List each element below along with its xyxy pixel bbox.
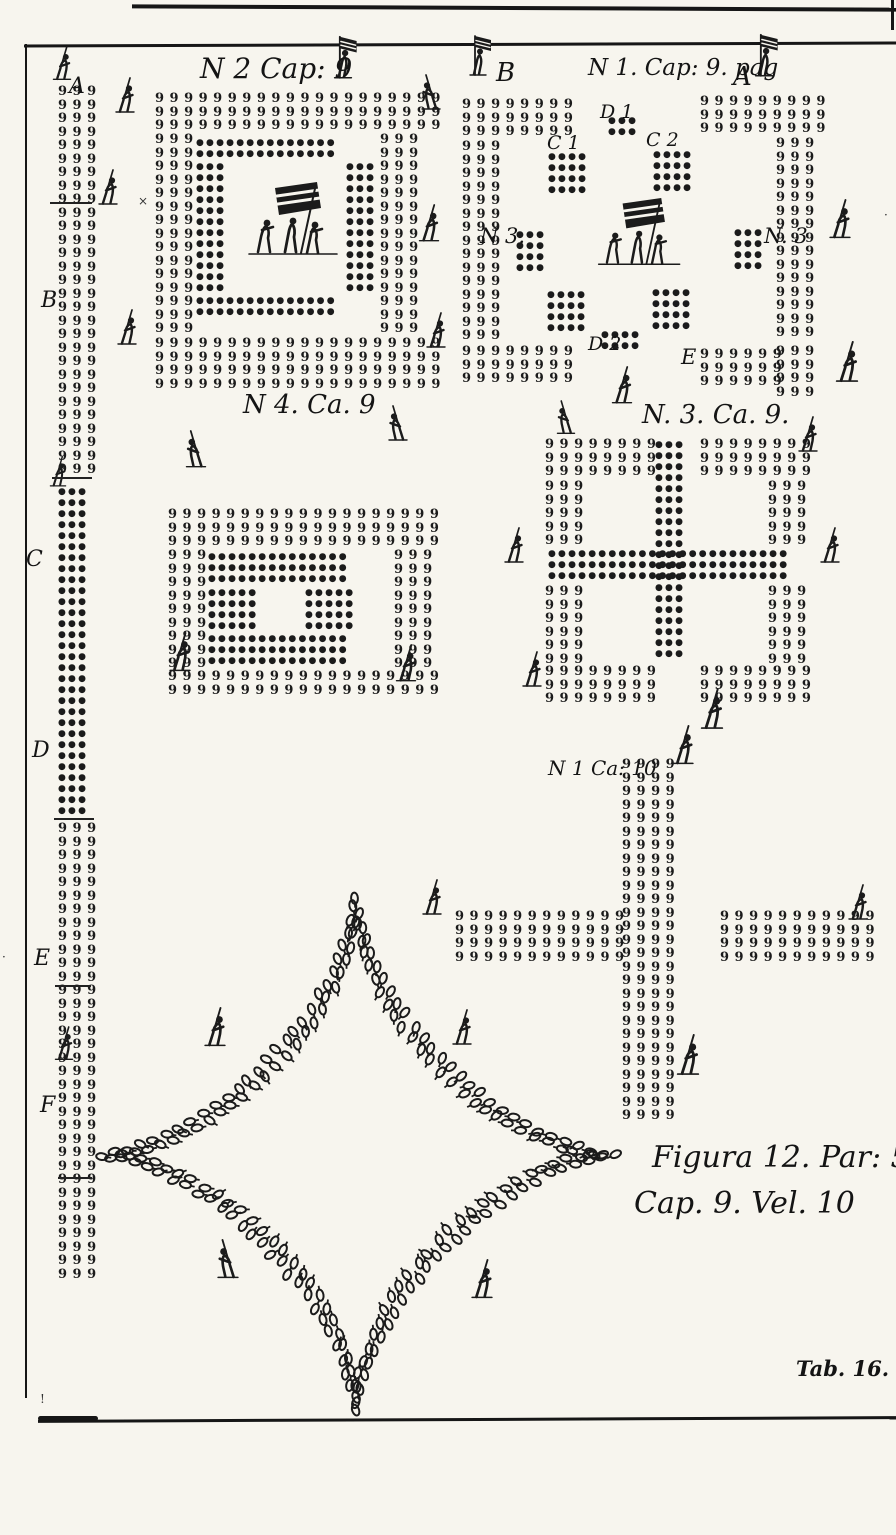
pikeman-figure <box>116 78 134 112</box>
label-a-top: A <box>733 62 752 92</box>
pikeman-figure <box>187 431 206 467</box>
star-loop-glyph <box>476 1105 492 1115</box>
pikeman-figure <box>673 726 693 763</box>
star-loop-glyph <box>490 1198 507 1210</box>
label-n4ca9: N 4. Ca. 9 <box>243 390 376 420</box>
star-loop-glyph <box>364 959 373 975</box>
star-loop-glyph <box>264 1247 281 1260</box>
label-c2: C 2 <box>646 129 679 151</box>
pikeman-figure <box>702 689 723 728</box>
star-loop-glyph <box>235 1092 252 1104</box>
star-loop-glyph <box>511 1127 526 1134</box>
star-loop-glyph <box>224 1101 240 1109</box>
star-loop-glyph <box>310 1017 320 1033</box>
star-loop-glyph <box>422 1053 435 1070</box>
pikeman-figure <box>50 457 65 486</box>
star-loop-glyph <box>496 1184 512 1193</box>
column-separator-line <box>50 202 92 204</box>
scan-speckle: · <box>2 950 6 964</box>
pikeman-figure <box>472 1260 492 1297</box>
ensign-figure <box>470 36 491 75</box>
pikeman-figure <box>420 205 439 241</box>
scan-speckle: ! <box>40 1392 45 1406</box>
star-loop-glyph <box>452 1211 467 1227</box>
star-loop-glyph <box>375 1313 384 1329</box>
label-col-d: D <box>32 738 50 763</box>
star-loop-glyph <box>248 1080 265 1093</box>
star-loop-glyph <box>502 1187 518 1201</box>
star-loop-glyph <box>525 1176 541 1187</box>
label-e-label: E <box>681 345 696 369</box>
pikeman-figure <box>389 406 407 440</box>
star-loop-glyph <box>323 1299 332 1315</box>
label-col-a: A <box>69 74 85 99</box>
star-loop-glyph <box>366 1339 373 1354</box>
star-loop-glyph <box>331 981 342 997</box>
label-n1ca10: N 1 Ca: 10 <box>548 756 657 780</box>
caption-figura-line1: Figura 12. Par: 5. <box>652 1140 896 1175</box>
label-n3-left: N 3. <box>480 224 525 248</box>
pikeman-figure <box>523 652 541 686</box>
label-b-top: B <box>496 58 515 88</box>
star-loop-glyph <box>415 1043 427 1060</box>
column-separator-line <box>54 818 94 820</box>
star-loop-glyph <box>386 1286 396 1302</box>
star-loop-glyph <box>404 1030 419 1046</box>
star-loop-glyph <box>292 1038 303 1054</box>
star-loop-glyph <box>333 1324 344 1340</box>
column-separator-line <box>58 1177 92 1179</box>
star-loop-glyph <box>141 1144 157 1154</box>
pikeman-figure <box>453 1010 471 1044</box>
column-separator-line <box>52 477 92 479</box>
pikeman-figure <box>99 170 117 204</box>
star-loop-glyph <box>199 1184 215 1192</box>
pikeman-figure <box>422 75 440 109</box>
star-loop-glyph <box>465 1213 482 1225</box>
star-loop-glyph <box>463 1204 478 1219</box>
column-separator-line <box>55 985 91 987</box>
label-n2cap9: N 2 Cap: 9 <box>200 52 352 85</box>
pikeman-figure <box>218 1240 238 1277</box>
star-loop-glyph <box>410 1021 421 1037</box>
star-loop-glyph <box>235 1206 250 1213</box>
caption-figura-line2: Cap. 9. Vel. 10 <box>634 1186 855 1221</box>
label-d2: D 2 <box>588 333 621 355</box>
pikeman-figure <box>55 1027 72 1059</box>
star-loop-glyph <box>398 1266 413 1282</box>
star-loop-glyph <box>255 1223 271 1236</box>
pikeman-figure <box>799 417 817 451</box>
star-formation <box>96 892 622 1416</box>
label-col-e: E <box>34 946 50 971</box>
pikeman-figure <box>118 310 136 344</box>
star-loop-glyph <box>539 1137 554 1145</box>
soldier-figures <box>50 35 867 1298</box>
star-loop-glyph <box>268 1232 282 1248</box>
figures-layer <box>0 0 896 1535</box>
label-col-b: B <box>41 288 57 313</box>
star-loop-glyph <box>393 1276 404 1292</box>
label-col-f: F <box>40 1093 55 1118</box>
label-col-c: C <box>26 547 43 572</box>
star-loop-glyph <box>289 1253 300 1269</box>
engraved-plate: 999 999 999 999 999 999 999 999 999 999 … <box>0 0 896 1535</box>
star-loop-glyph <box>345 942 355 958</box>
star-loop-glyph <box>556 1154 572 1162</box>
pikeman-figure <box>678 1035 699 1074</box>
pikeman-figure <box>505 528 523 562</box>
star-loop-glyph <box>525 1131 542 1143</box>
star-loop-glyph <box>184 1174 200 1183</box>
label-n3ca9: N. 3. Ca. 9. <box>642 400 789 430</box>
star-loop-glyph <box>512 1180 529 1193</box>
star-loop-glyph <box>455 1088 472 1100</box>
flag-group-figure <box>599 198 680 264</box>
star-loop-glyph <box>436 1052 448 1069</box>
star-loop-glyph <box>268 1061 285 1074</box>
pikeman-figure <box>170 633 190 670</box>
flag-group-figure <box>249 182 337 254</box>
pikeman-figure <box>397 645 416 681</box>
pikeman-figure <box>205 1008 225 1045</box>
star-loop-glyph <box>369 1325 377 1341</box>
star-loop-glyph <box>442 1076 458 1091</box>
scan-speckle: · <box>884 208 888 222</box>
pikeman-figure <box>557 401 574 433</box>
star-loop-glyph <box>225 1209 241 1220</box>
star-loop-glyph <box>317 1309 327 1325</box>
label-n3-right: N. 3 <box>764 224 808 248</box>
star-loop-glyph <box>466 1097 483 1110</box>
pikeman-figure <box>423 880 441 914</box>
caption-tab-number: Tab. 16. <box>796 1356 889 1381</box>
star-loop-glyph <box>372 986 386 1002</box>
star-loop-glyph <box>497 1119 513 1127</box>
pikeman-figure <box>830 200 850 237</box>
star-loop-glyph <box>388 1303 400 1320</box>
star-loop-glyph <box>315 1285 324 1301</box>
star-loop-glyph <box>282 1265 295 1282</box>
star-loop-glyph <box>412 1269 426 1285</box>
star-loop-glyph <box>390 1010 397 1025</box>
label-d1: D 1 <box>600 101 633 123</box>
pikeman-figure <box>821 528 839 562</box>
pikeman-figure <box>427 313 445 347</box>
label-c1: C 1 <box>547 132 580 154</box>
pikeman-figure <box>613 367 632 403</box>
star-loop-glyph <box>395 1021 406 1037</box>
star-loop-glyph <box>432 1066 447 1082</box>
scan-speckle: × <box>138 194 148 208</box>
pikeman-figure <box>53 47 70 79</box>
star-loop-glyph <box>438 1220 453 1236</box>
star-loop-glyph <box>433 1230 445 1247</box>
star-loop-glyph <box>167 1136 183 1145</box>
star-loop-glyph <box>280 1050 296 1065</box>
star-loop-glyph <box>260 1054 277 1066</box>
star-loop-glyph <box>556 1135 572 1146</box>
pikeman-figure <box>837 342 858 381</box>
pikeman-figure <box>849 885 867 919</box>
